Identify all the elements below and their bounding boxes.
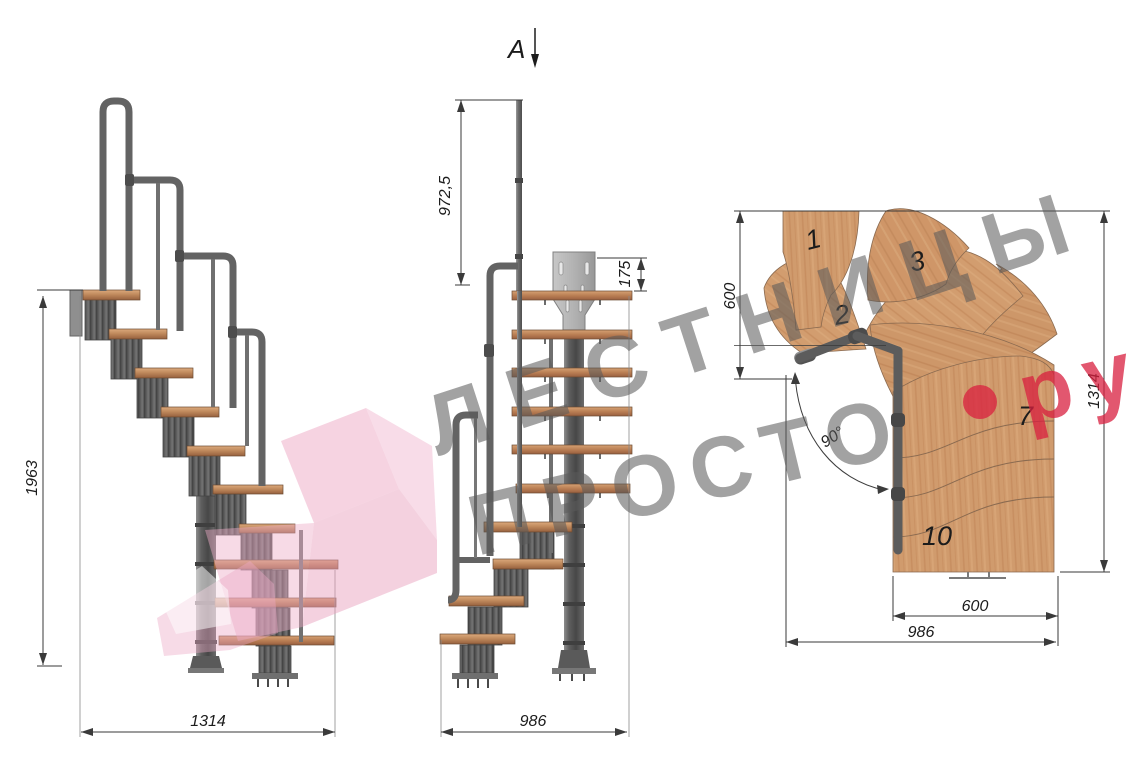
svg-text:600: 600 <box>962 598 989 615</box>
svg-text:A: A <box>506 34 525 64</box>
svg-text:10: 10 <box>922 521 952 551</box>
svg-text:1314: 1314 <box>190 713 226 730</box>
svg-text:972,5: 972,5 <box>437 176 454 216</box>
svg-text:175: 175 <box>617 261 634 288</box>
svg-text:986: 986 <box>520 713 547 730</box>
svg-text:986: 986 <box>908 624 935 641</box>
svg-text:1963: 1963 <box>24 460 41 496</box>
